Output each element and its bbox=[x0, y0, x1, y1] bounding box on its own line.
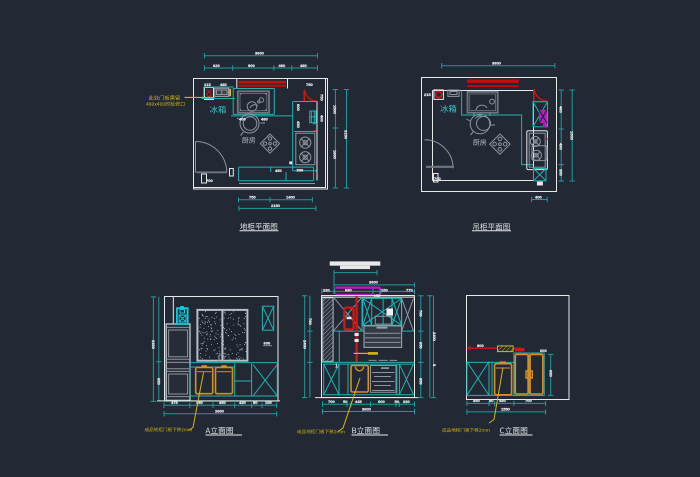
svg-text:770: 770 bbox=[406, 288, 413, 293]
svg-text:480: 480 bbox=[300, 63, 307, 68]
svg-text:650: 650 bbox=[419, 342, 424, 349]
svg-text:50: 50 bbox=[343, 399, 348, 404]
svg-text:475: 475 bbox=[171, 400, 178, 405]
svg-text:780: 780 bbox=[419, 310, 424, 317]
svg-text:230: 230 bbox=[323, 288, 330, 293]
svg-text:600: 600 bbox=[296, 104, 301, 111]
svg-text:460: 460 bbox=[279, 63, 286, 68]
svg-text:400: 400 bbox=[320, 115, 325, 122]
svg-text:480: 480 bbox=[220, 82, 227, 87]
svg-text:1600: 1600 bbox=[333, 150, 338, 160]
svg-text:700: 700 bbox=[434, 176, 441, 181]
svg-text:1500: 1500 bbox=[570, 131, 575, 141]
svg-text:50: 50 bbox=[489, 398, 494, 403]
svg-text:480: 480 bbox=[261, 117, 268, 122]
svg-text:600: 600 bbox=[264, 341, 271, 346]
svg-text:396: 396 bbox=[297, 168, 304, 173]
svg-text:150: 150 bbox=[381, 288, 388, 293]
svg-text:215: 215 bbox=[204, 82, 211, 87]
svg-text:700: 700 bbox=[328, 399, 335, 404]
svg-text:150: 150 bbox=[265, 400, 272, 405]
svg-text:400: 400 bbox=[535, 194, 542, 199]
svg-text:1550: 1550 bbox=[501, 407, 511, 412]
svg-text:50: 50 bbox=[253, 400, 258, 405]
svg-text:50: 50 bbox=[395, 399, 400, 404]
svg-text:650: 650 bbox=[157, 378, 162, 385]
svg-text:750: 750 bbox=[320, 94, 325, 101]
svg-text:445: 445 bbox=[355, 399, 362, 404]
svg-text:600: 600 bbox=[540, 348, 547, 353]
svg-text:800: 800 bbox=[477, 343, 484, 348]
svg-text:680: 680 bbox=[345, 288, 352, 293]
svg-text:620: 620 bbox=[213, 63, 220, 68]
svg-text:2400: 2400 bbox=[432, 332, 437, 342]
svg-text:215: 215 bbox=[424, 92, 431, 97]
svg-text:1400: 1400 bbox=[286, 195, 296, 200]
svg-text:3600: 3600 bbox=[369, 280, 379, 285]
svg-text:460: 460 bbox=[559, 106, 564, 113]
svg-text:G: G bbox=[388, 311, 392, 317]
svg-text:2400: 2400 bbox=[303, 340, 308, 350]
svg-text:900: 900 bbox=[248, 63, 255, 68]
svg-text:450: 450 bbox=[275, 168, 282, 173]
svg-text:490: 490 bbox=[559, 143, 564, 150]
svg-text:750: 750 bbox=[306, 82, 313, 87]
svg-text:450: 450 bbox=[219, 400, 226, 405]
svg-text:430: 430 bbox=[239, 400, 246, 405]
svg-text:2400: 2400 bbox=[151, 340, 156, 350]
svg-text:400: 400 bbox=[239, 117, 246, 122]
svg-text:850: 850 bbox=[419, 378, 424, 385]
svg-text:3600: 3600 bbox=[492, 61, 502, 66]
svg-text:450: 450 bbox=[499, 398, 506, 403]
svg-text:2600: 2600 bbox=[215, 409, 225, 414]
svg-text:700: 700 bbox=[206, 178, 213, 183]
svg-text:3150: 3150 bbox=[344, 130, 349, 140]
svg-text:350: 350 bbox=[473, 398, 480, 403]
svg-text:3600: 3600 bbox=[362, 406, 372, 411]
svg-text:450: 450 bbox=[296, 121, 301, 128]
svg-text:650: 650 bbox=[549, 370, 554, 377]
svg-text:750: 750 bbox=[249, 195, 256, 200]
svg-text:1: 1 bbox=[335, 364, 338, 370]
svg-text:2150: 2150 bbox=[271, 203, 281, 208]
svg-text:780: 780 bbox=[308, 318, 313, 325]
svg-text:600: 600 bbox=[378, 399, 385, 404]
svg-text:330: 330 bbox=[403, 399, 410, 404]
svg-text:1500: 1500 bbox=[333, 105, 338, 115]
svg-text:3600: 3600 bbox=[255, 51, 265, 56]
svg-text:700: 700 bbox=[525, 398, 532, 403]
svg-text:350: 350 bbox=[559, 169, 564, 176]
